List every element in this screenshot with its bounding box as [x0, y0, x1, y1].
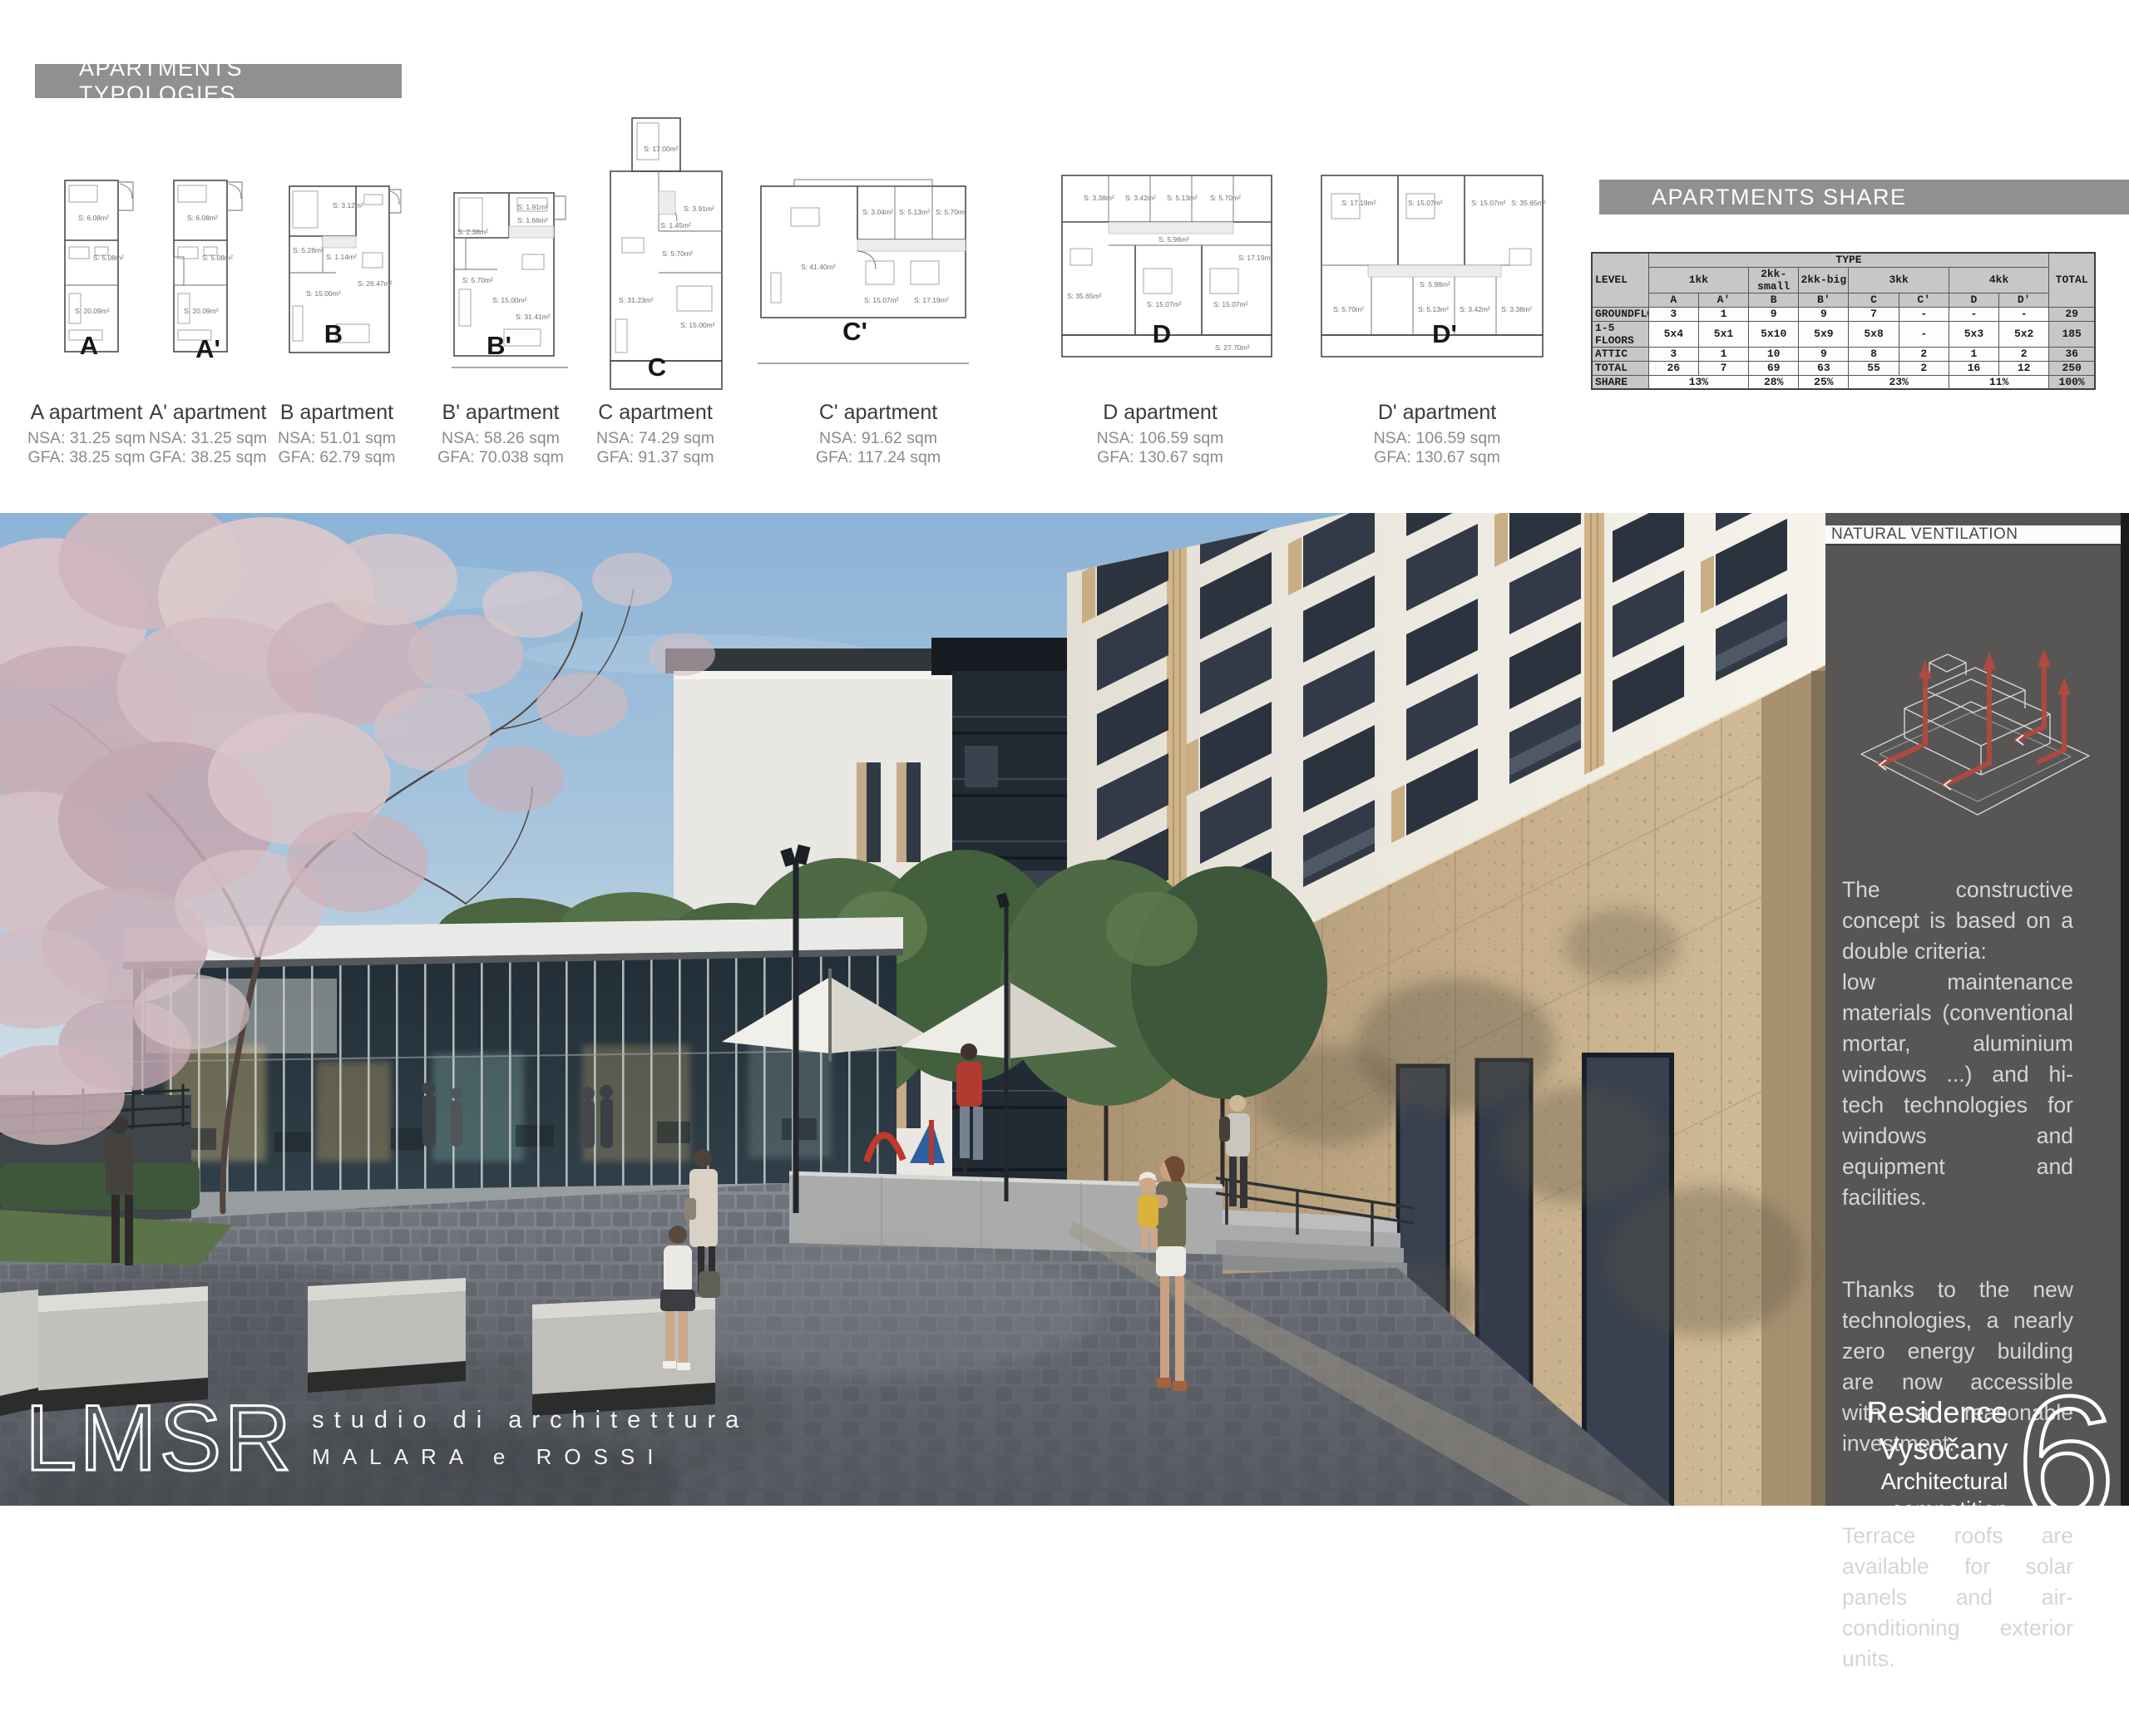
table-row-attic: ATTIC 31 109 82 12 36 [1592, 347, 2095, 361]
ventilation-text: The constructive concept is based on a d… [1842, 844, 2073, 1736]
svg-text:S: 35.65m²: S: 35.65m² [1067, 292, 1102, 300]
caption-c-prime: C' apartment NSA: 91.62 sqm GFA: 117.24 … [778, 401, 978, 467]
plan-letter-a2: A' [195, 334, 220, 364]
svg-text:S: 3.38m²: S: 3.38m² [1501, 305, 1532, 313]
svg-text:S: 41.40m²: S: 41.40m² [801, 263, 836, 271]
right-edge-strip [2121, 513, 2129, 1506]
svg-text:S: 5.70m²: S: 5.70m² [1210, 194, 1241, 202]
typologies-banner: APARTMENTS TYPOLOGIES [35, 64, 402, 98]
svg-text:S: 3.91m²: S: 3.91m² [684, 205, 714, 213]
lmsr-partners-line: MALARA e ROSSI [312, 1444, 748, 1470]
svg-text:S: 17.00m²: S: 17.00m² [644, 145, 679, 153]
table-row-share: SHARE 13% 28% 25% 23% 11% 100% [1592, 375, 2095, 389]
project-name: Residence Vysočany [1825, 1394, 2008, 1467]
table-row-floors: 1-5 FLOORS 5x45x1 5x105x9 5x8- 5x35x2 18… [1592, 321, 2095, 347]
svg-text:S: 15.07m²: S: 15.07m² [1408, 199, 1443, 207]
svg-text:S: 3.12m²: S: 3.12m² [333, 201, 363, 210]
plan-letter-b2: B' [487, 331, 511, 361]
svg-text:S: 5.98m²: S: 5.98m² [1158, 235, 1189, 244]
svg-text:S: 5.13m²: S: 5.13m² [899, 208, 930, 216]
type-header: TYPE [1648, 253, 2049, 267]
svg-text:S: 5.70m²: S: 5.70m² [936, 208, 966, 216]
svg-text:S: 35.65m²: S: 35.65m² [1511, 199, 1546, 207]
table-row-total: TOTAL 267 6963 552 1612 250 [1592, 361, 2095, 375]
svg-text:S: 15.07m²: S: 15.07m² [1147, 300, 1182, 308]
caption-d-prime: D' apartment NSA: 106.59 sqm GFA: 130.67… [1337, 401, 1537, 467]
svg-text:S: 3.38m²: S: 3.38m² [1084, 194, 1114, 202]
plan-c-prime-underline [758, 362, 969, 364]
svg-text:S: 5.98m²: S: 5.98m² [1420, 280, 1450, 289]
svg-text:S: 5.13m²: S: 5.13m² [1418, 305, 1449, 313]
ventilation-sidebar: NATURAL VENTILATION [1825, 513, 2129, 1506]
svg-text:S: 31.41m²: S: 31.41m² [516, 313, 551, 321]
plan-b-prime-underline [452, 367, 568, 368]
plan-letter-d: D [1153, 319, 1171, 349]
svg-text:S: 26.47m²: S: 26.47m² [358, 279, 393, 288]
typologies-banner-label: APARTMENTS TYPOLOGIES [79, 56, 402, 107]
svg-text:S: 6.08m²: S: 6.08m² [78, 214, 109, 222]
svg-text:S: 1.45m²: S: 1.45m² [660, 221, 691, 229]
ventilation-paragraph: Terrace roofs are available for solar pa… [1842, 1521, 2073, 1674]
page-number: 6 [2016, 1388, 2116, 1531]
total-header: TOTAL [2049, 253, 2095, 307]
svg-text:S: 5.08m²: S: 5.08m² [93, 254, 124, 262]
bench [308, 1278, 466, 1393]
table-row-header3: AA' BB' CC' DD' [1592, 293, 2095, 307]
svg-text:S: 5.08m²: S: 5.08m² [202, 254, 233, 262]
competition-label: Architectural competition [1825, 1467, 2008, 1524]
caption-c: C apartment NSA: 74.29 sqm GFA: 91.37 sq… [556, 401, 755, 467]
svg-text:S: 15.00m²: S: 15.00m² [306, 289, 341, 298]
svg-text:S: 1.91m²: S: 1.91m² [517, 203, 548, 211]
ventilation-header-label: NATURAL VENTILATION [1831, 525, 2018, 544]
share-banner-label: APARTMENTS SHARE [1652, 185, 1907, 210]
svg-text:S: 6.08m²: S: 6.08m² [187, 214, 218, 222]
svg-text:S: 15.00m²: S: 15.00m² [680, 321, 715, 329]
plan-letter-c: C [648, 353, 666, 382]
floorplan-c: S: 17.00m² S: 3.91m² S: 1.45m² S: 5.70m²… [607, 115, 732, 393]
floorplan-b: S: 3.12m² S: 5.28m² S: 1.14m² S: 26.47m²… [286, 183, 404, 359]
lmsr-wordmark: LMSR [25, 1398, 294, 1478]
svg-text:S: 27.70m²: S: 27.70m² [1215, 343, 1250, 352]
floorplan-a: S: 6.08m² S: 5.08m² S: 20.09m² [62, 177, 138, 368]
ventilation-diagram [1846, 584, 2104, 833]
ventilation-paragraph: The constructive concept is based on a d… [1842, 875, 2073, 1213]
svg-text:S: 15.07m²: S: 15.07m² [1471, 199, 1506, 207]
caption-d: D apartment NSA: 106.59 sqm GFA: 130.67 … [1060, 401, 1260, 467]
airflow-arrows [1880, 665, 2064, 785]
share-banner: APARTMENTS SHARE [1599, 180, 2129, 215]
apartments-share-table: LEVEL TYPE TOTAL 1kk 2kk-small 2kk-big 3… [1591, 252, 2096, 390]
svg-text:S: 3.42m²: S: 3.42m² [1125, 194, 1156, 202]
plan-letter-c2: C' [842, 317, 867, 347]
svg-text:S: 15.07m²: S: 15.07m² [864, 296, 899, 304]
svg-text:S: 17.19m²: S: 17.19m² [1341, 199, 1376, 207]
svg-text:S: 5.70m²: S: 5.70m² [662, 249, 693, 258]
svg-text:S: 20.09m²: S: 20.09m² [75, 307, 110, 315]
project-title-block: Residence Vysočany Architectural competi… [1825, 1388, 2116, 1531]
lmsr-logo: LMSR studio di architettura MALARA e ROS… [25, 1398, 748, 1478]
svg-text:S: 31.23m²: S: 31.23m² [619, 296, 654, 304]
svg-text:S: 5.70m²: S: 5.70m² [1333, 305, 1364, 313]
table-row-header1: LEVEL TYPE TOTAL [1592, 253, 2095, 267]
svg-text:S: 3.04m²: S: 3.04m² [862, 208, 893, 216]
svg-text:S: 1.66m²: S: 1.66m² [517, 216, 548, 224]
svg-text:S: 17.19m²: S: 17.19m² [1238, 254, 1273, 262]
plan-letter-a: A [80, 331, 98, 361]
architectural-rendering [0, 513, 1825, 1506]
level-header: LEVEL [1592, 253, 1648, 307]
table-row-groundfloor: GROUNDFLOOR 31 99 7- -- 29 [1592, 307, 2095, 321]
svg-text:S: 1.14m²: S: 1.14m² [326, 253, 357, 261]
svg-text:S: 3.42m²: S: 3.42m² [1460, 305, 1490, 313]
floorplan-c-prime: S: 3.04m² S: 5.13m² S: 5.70m² S: 41.40m²… [758, 176, 970, 328]
plan-letter-d2: D' [1432, 319, 1457, 349]
table-row-header2: 1kk 2kk-small 2kk-big 3kk 4kk [1592, 267, 2095, 293]
ventilation-header-bar: NATURAL VENTILATION [1825, 525, 2121, 545]
svg-text:S: 5.28m²: S: 5.28m² [293, 246, 324, 254]
plan-letter-b: B [324, 319, 343, 349]
svg-text:S: 15.00m²: S: 15.00m² [492, 296, 527, 304]
svg-text:S: 15.07m²: S: 15.07m² [1213, 300, 1248, 308]
svg-text:S: 17.19m²: S: 17.19m² [914, 296, 949, 304]
svg-text:S: 20.09m²: S: 20.09m² [184, 307, 219, 315]
lmsr-studio-line: studio di architettura [312, 1407, 748, 1434]
svg-text:S: 5.70m²: S: 5.70m² [462, 276, 493, 284]
svg-text:S: 2.38m²: S: 2.38m² [457, 228, 488, 236]
svg-text:S: 5.13m²: S: 5.13m² [1167, 194, 1198, 202]
